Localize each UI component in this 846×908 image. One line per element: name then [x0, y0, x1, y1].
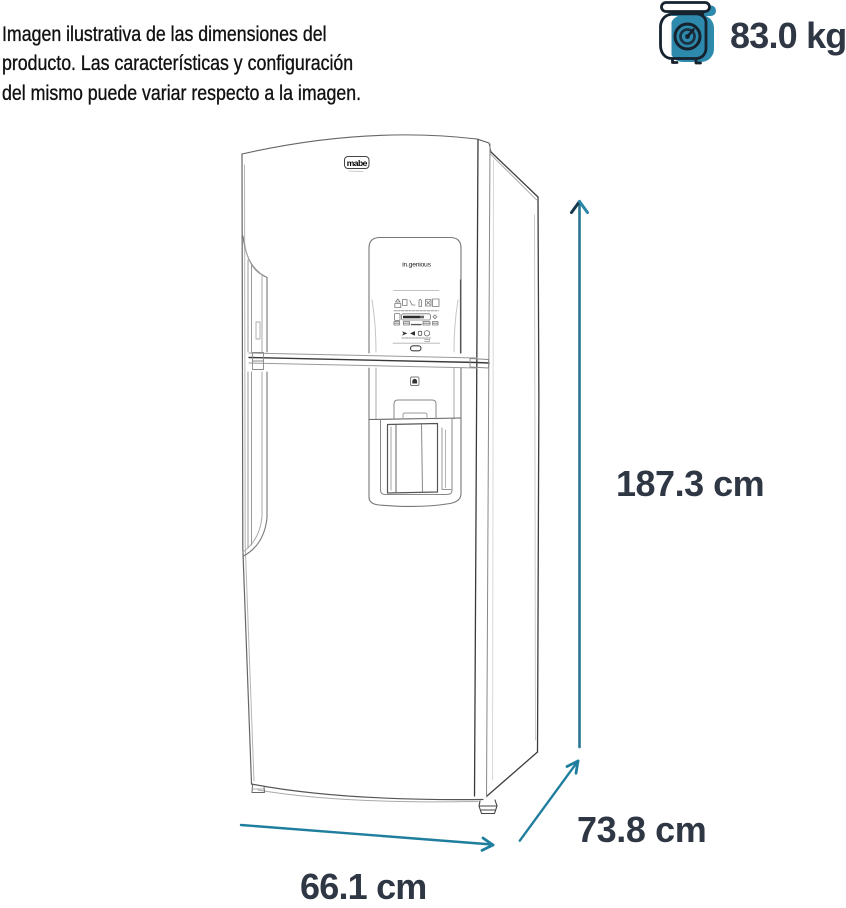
- svg-text:in.genious: in.genious: [402, 262, 431, 269]
- svg-text:mabe: mabe: [347, 158, 368, 168]
